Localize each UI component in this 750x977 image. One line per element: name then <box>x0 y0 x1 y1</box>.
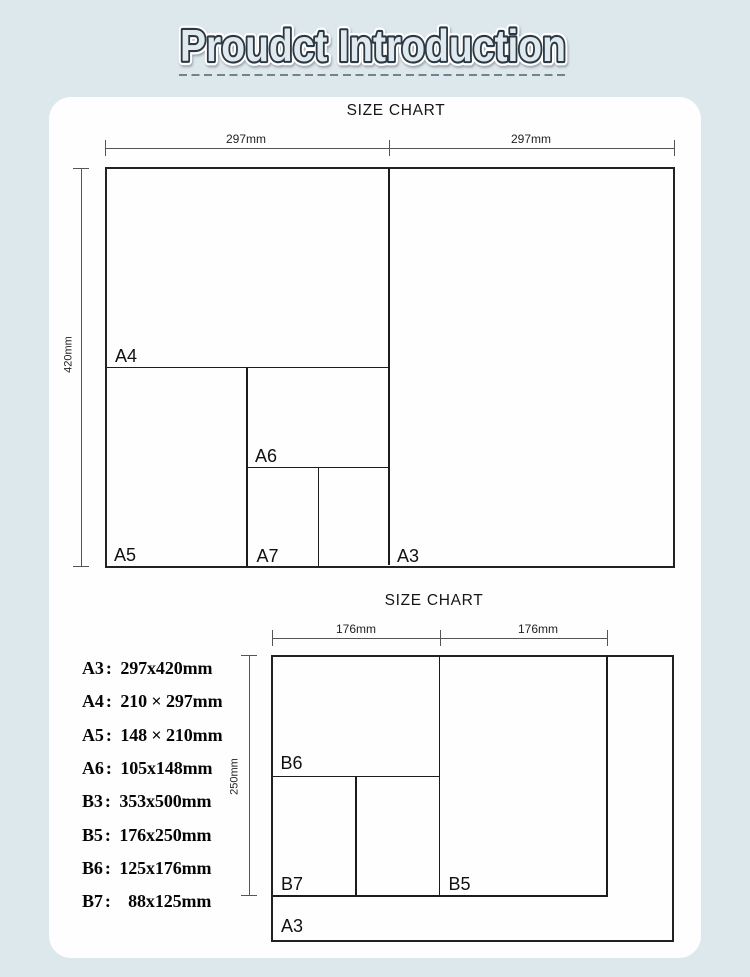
svg-text:Proudct Introduction: Proudct Introduction <box>180 22 566 71</box>
